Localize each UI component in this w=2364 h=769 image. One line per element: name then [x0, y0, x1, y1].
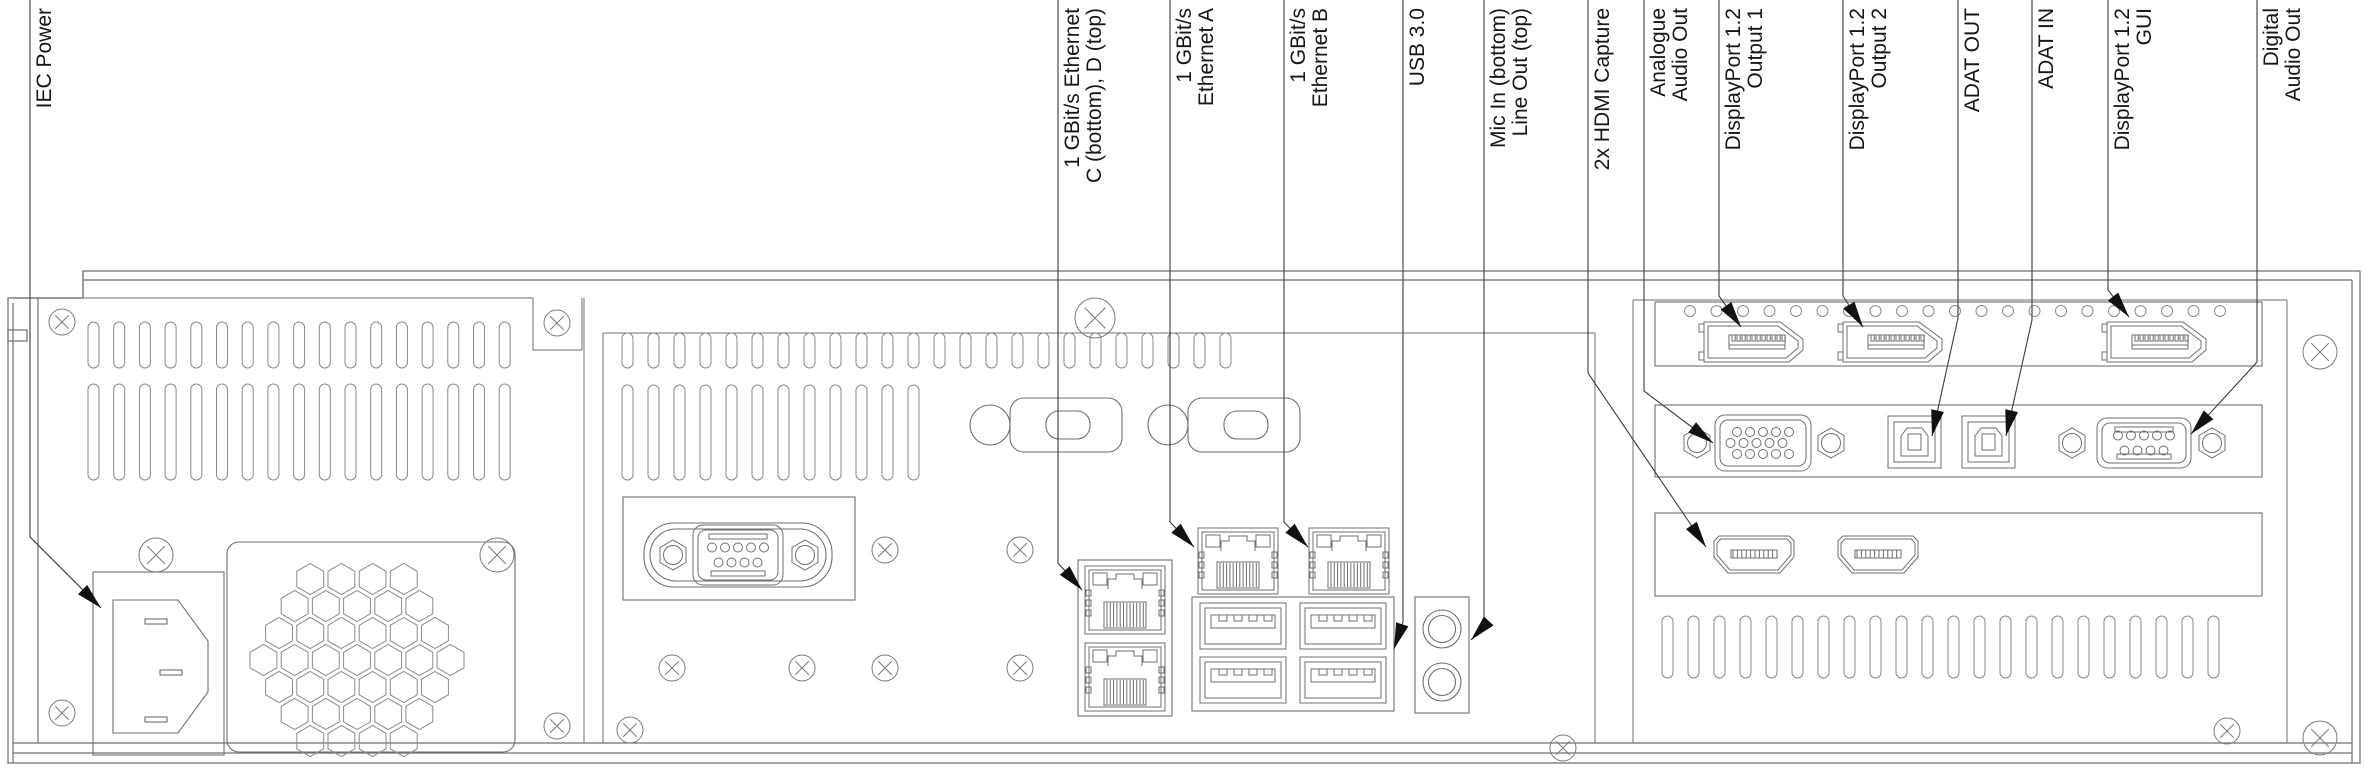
usb3-port-2 [1300, 603, 1386, 649]
label-ethernet-b-1: 1 GBit/s [1287, 8, 1310, 83]
screw [1007, 537, 1033, 563]
line-out-jack-inner [1429, 616, 1456, 643]
label-usb-3-0: USB 3.0 [1406, 8, 1429, 86]
mic-in-jack-inner [1429, 669, 1456, 696]
screw [1007, 655, 1033, 681]
label-analogue-audio-1: Analogue [1647, 8, 1670, 97]
leader-adat-in [2005, 0, 2032, 436]
screw [544, 310, 570, 336]
analogue-audio-de15 [1715, 415, 1811, 471]
label-dp-gui-1: DisplayPort 1.2 [2111, 8, 2134, 150]
screws [49, 298, 2337, 761]
ear-notch [8, 330, 27, 341]
fan-grille [250, 564, 464, 757]
serial-plate [650, 529, 826, 581]
usb3-port-4 [1300, 657, 1386, 703]
hdmi-capture-1 [1714, 536, 1794, 573]
vent-grid-card-cage [1662, 616, 2219, 678]
vent-grid-psu-top [88, 322, 510, 368]
label-mic-line-2: Line Out (top) [1509, 8, 1532, 136]
vga-blank-cutout-2 [1148, 398, 1300, 452]
label-dp-output1-2: Output 1 [1744, 8, 1767, 89]
screw [2303, 721, 2337, 755]
screw [480, 538, 514, 572]
label-analogue-audio-2: Audio Out [1669, 8, 1692, 102]
screw [2303, 335, 2337, 369]
port-labels: IEC Power 1 GBit/s Ethernet C (bottom), … [33, 8, 2305, 183]
label-iec-power: IEC Power [33, 8, 56, 108]
iec-pin-top [145, 619, 167, 624]
label-dp-output1-1: DisplayPort 1.2 [1722, 8, 1745, 150]
panel-seams [13, 298, 2287, 743]
label-dp-gui-2: GUI [2133, 8, 2156, 45]
label-ethernet-a-1: 1 GBit/s [1173, 8, 1196, 83]
label-adat-out: ADAT OUT [1961, 8, 1984, 112]
displayport-output-2-connector [1838, 322, 1942, 362]
screw [1550, 735, 1576, 761]
label-dp-output2-2: Output 2 [1868, 8, 1891, 89]
iec-c14-inlet [113, 600, 208, 733]
screw [49, 700, 75, 726]
iec-pin-bottom [145, 717, 167, 722]
usb-block [1192, 597, 1394, 711]
label-adat-in: ADAT IN [2035, 8, 2058, 89]
label-ethernet-c-d-2: C (bottom), D (top) [1083, 8, 1106, 183]
hdmi-capture-2 [1838, 536, 1918, 573]
screw [617, 717, 643, 743]
serial-plate-outer [644, 523, 832, 587]
ethernet-b-rj45 [1309, 528, 1389, 594]
screw [1075, 298, 1115, 338]
label-ethernet-c-d-1: 1 GBit/s Ethernet [1061, 8, 1084, 168]
vent-grid-mid-top [622, 333, 1231, 368]
screw [139, 538, 173, 572]
displayport-gui-connector [2102, 322, 2206, 362]
screw [659, 655, 685, 681]
label-dp-output2-1: DisplayPort 1.2 [1846, 8, 1869, 150]
serial-db9 [693, 525, 783, 585]
label-mic-line-1: Mic In (bottom) [1487, 8, 1510, 148]
usb3-port-3 [1200, 657, 1286, 703]
label-ethernet-a-2: Ethernet A [1195, 8, 1218, 106]
usb3-port-1 [1200, 603, 1286, 649]
ethernet-a-rj45 [1198, 528, 1278, 594]
ethernet-cd-block [1078, 560, 1172, 716]
generated-details [30, 0, 2337, 761]
leader-digital-audio-out [2191, 0, 2257, 434]
vent-grid-psu-bottom [88, 384, 510, 480]
io-section [623, 398, 1469, 716]
chassis-outline [8, 271, 2360, 763]
ethernet-c-rj45 [1085, 643, 1165, 711]
ethernet-d-rj45 [1085, 566, 1165, 634]
label-digital-audio-2: Audio Out [2282, 8, 2305, 102]
label-hdmi-capture: 2x HDMI Capture [1591, 8, 1614, 170]
jack-screw-nuts [660, 428, 2225, 570]
rear-panel-diagram: IEC Power 1 GBit/s Ethernet C (bottom), … [0, 0, 2364, 769]
label-ethernet-b-2: Ethernet B [1309, 8, 1332, 107]
digital-audio-db9 [2097, 418, 2191, 468]
iec-pin-mid [160, 670, 182, 675]
psu-section [93, 542, 515, 755]
screw [872, 655, 898, 681]
vent-grid-mid-bottom [622, 385, 919, 480]
leader-usb-3-0 [1394, 0, 1408, 649]
displayport-output-1-connector [1699, 322, 1803, 362]
screw [49, 309, 75, 335]
vga-blank-cutout-1 [970, 398, 1122, 452]
screw [789, 655, 815, 681]
fan-plate [227, 542, 515, 752]
leader-adat-out [1931, 0, 1958, 436]
screw [544, 713, 570, 739]
screw [872, 537, 898, 563]
screw [2214, 718, 2240, 744]
card-vent-holes [1685, 306, 2226, 317]
label-digital-audio-1: Digital [2260, 8, 2283, 66]
